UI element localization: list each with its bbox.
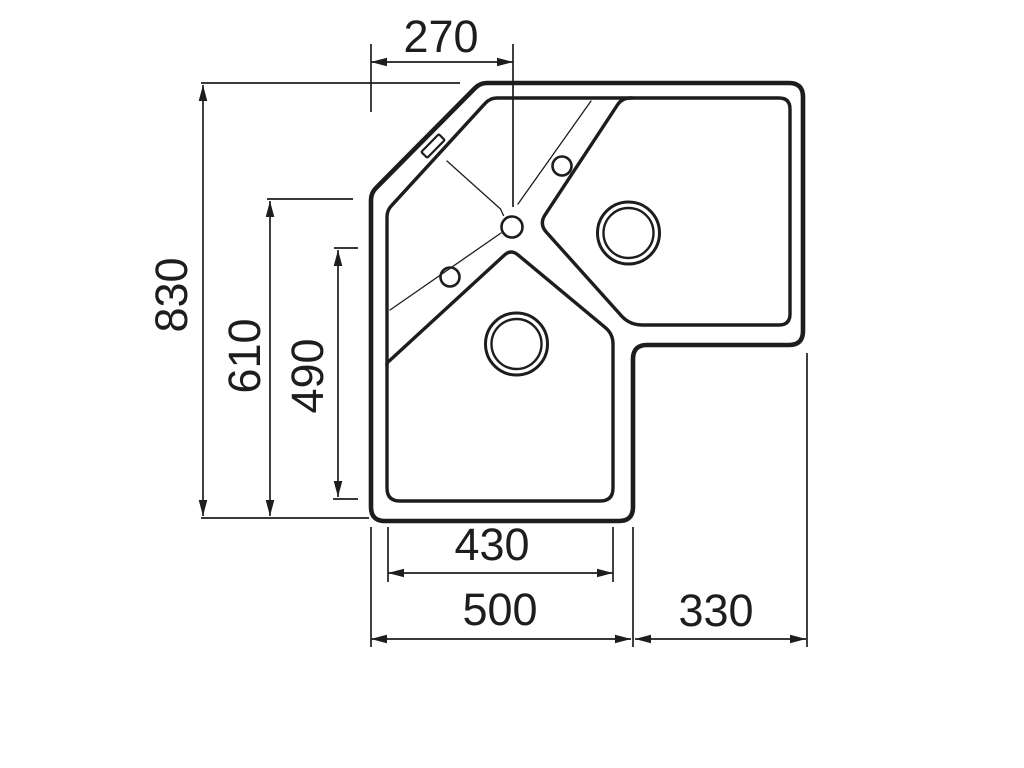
bottom-drain-outer-ring — [486, 313, 548, 375]
accessory-hole-ne — [553, 157, 572, 176]
corner-sink-technical-drawing: 270 830 610 490 430 — [0, 0, 1024, 768]
dim-label-270: 270 — [403, 11, 478, 62]
dim-label-430: 430 — [454, 519, 529, 570]
dim-label-500: 500 — [462, 584, 537, 635]
right-drain-inner-ring — [604, 208, 654, 258]
dimension-270: 270 — [371, 11, 513, 207]
crease-line-nw — [447, 161, 504, 216]
crease-line-ne — [518, 101, 591, 204]
dim-label-610: 610 — [219, 318, 270, 393]
bottom-bowl-drain — [486, 313, 548, 375]
accessory-hole-sw — [441, 268, 460, 287]
bottom-drain-inner-ring — [492, 319, 542, 369]
dim-label-490: 490 — [282, 338, 333, 413]
dimension-330: 330 — [635, 353, 807, 647]
dimension-annotations: 270 830 610 490 430 — [146, 11, 807, 647]
sink-body — [371, 83, 803, 521]
dimension-490: 490 — [282, 248, 358, 499]
technical-drawing-page: 270 830 610 490 430 — [0, 0, 1024, 768]
right-bowl — [542, 98, 790, 325]
right-bowl-drain — [598, 202, 660, 264]
right-drain-outer-ring — [598, 202, 660, 264]
tap-hole-center — [502, 217, 523, 238]
dimension-430: 430 — [388, 519, 613, 582]
dim-label-830: 830 — [146, 257, 197, 332]
dim-label-330: 330 — [678, 585, 753, 636]
